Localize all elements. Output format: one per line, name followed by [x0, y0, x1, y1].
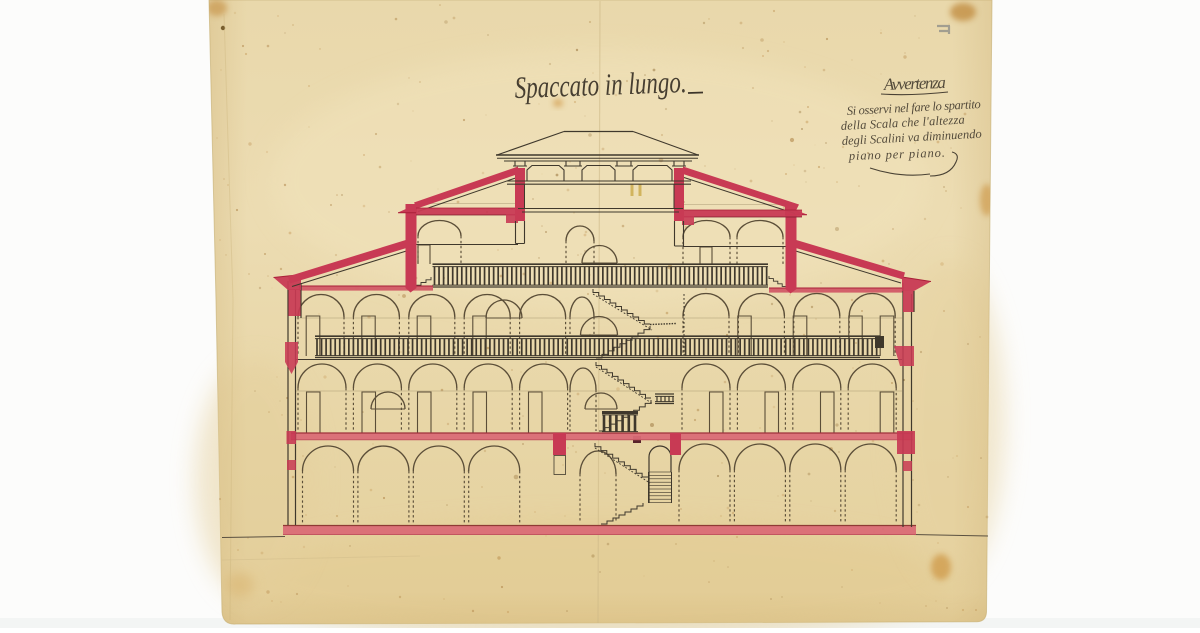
svg-text:Avvertenza: Avvertenza	[882, 73, 946, 94]
svg-text:Spaccato in lungo.: Spaccato in lungo.	[514, 64, 687, 105]
